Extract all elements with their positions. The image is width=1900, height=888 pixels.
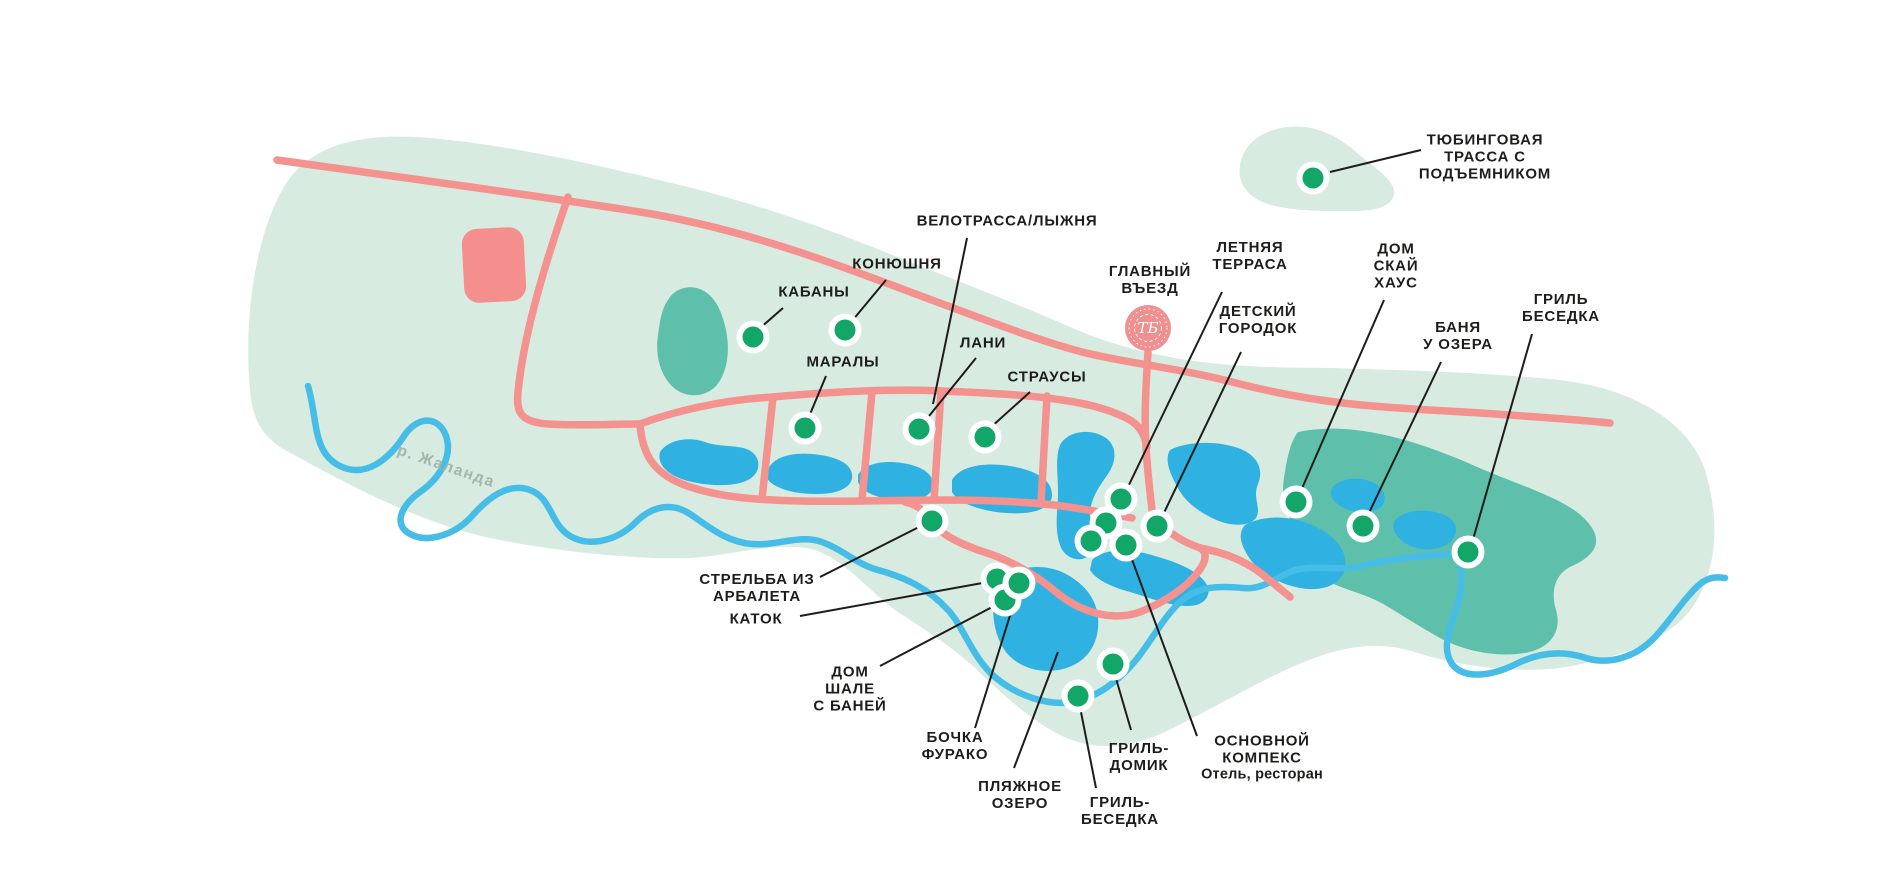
chalet-house-label: ДОМШАЛЕС БАНЕЙ bbox=[813, 664, 886, 715]
grill-cabin-marker[interactable] bbox=[1097, 648, 1130, 681]
sky-house-label: ДОМСКАЙХАУС bbox=[1374, 241, 1419, 292]
grill-gazebo-east-label-line: БЕСЕДКА bbox=[1522, 308, 1600, 325]
summer-terrace-marker-dot bbox=[1111, 489, 1132, 510]
crossbow-shooting-label: СТРЕЛЬБА ИЗАРБАЛЕТА bbox=[699, 571, 814, 605]
beach-lake-label-line: ОЗЕРО bbox=[978, 795, 1062, 812]
main-complex-label: ОСНОВНОЙКОМПЕКСОтель, ресторан bbox=[1201, 733, 1323, 784]
tubing-track-label-line: ПОДЪЕМНИКОМ bbox=[1419, 166, 1551, 183]
kids-playground-label-line: ДЕТСКИЙ bbox=[1219, 303, 1297, 320]
crossbow-shooting-marker[interactable] bbox=[916, 505, 949, 538]
bike-ski-track-label: ВЕЛОТРАССА/ЛЫЖНЯ bbox=[917, 213, 1098, 230]
tubing-track-label: ТЮБИНГОВАЯТРАССА СПОДЪЕМНИКОМ bbox=[1419, 132, 1551, 183]
ostriches-marker-dot bbox=[975, 427, 996, 448]
furako-barrel-label-line: ФУРАКО bbox=[922, 746, 989, 763]
main-entrance-label-line: ВЪЕЗД bbox=[1109, 280, 1191, 297]
chalet-house-label-line: ШАЛЕ bbox=[813, 681, 886, 698]
main-complex-label-line: ОСНОВНОЙ bbox=[1201, 733, 1323, 750]
tubing-track-marker[interactable] bbox=[1297, 162, 1330, 195]
grill-gazebo-south-marker[interactable] bbox=[1062, 680, 1095, 713]
fallow-deer-label-line: ЛАНИ bbox=[960, 335, 1006, 352]
sky-house-label-line: ХАУС bbox=[1374, 275, 1419, 292]
crossbow-shooting-label-line: СТРЕЛЬБА ИЗ bbox=[699, 571, 814, 588]
main-entrance-label-line: ГЛАВНЫЙ bbox=[1109, 263, 1191, 280]
sky-house-label-line: СКАЙ bbox=[1374, 258, 1419, 275]
entrance-logo-monogram: ТБ bbox=[1137, 319, 1158, 337]
grill-gazebo-east-label: ГРИЛЬБЕСЕДКА bbox=[1522, 291, 1600, 325]
sky-house-label-line: ДОМ bbox=[1374, 241, 1419, 258]
sky-house-marker[interactable] bbox=[1280, 486, 1313, 519]
tubing-track-label-line: ТРАССА С bbox=[1419, 149, 1551, 166]
grill-cabin-label-line: ДОМИК bbox=[1109, 757, 1169, 774]
entrance-logo[interactable]: ТБ bbox=[1125, 305, 1171, 351]
ostriches-label: СТРАУСЫ bbox=[1007, 369, 1086, 386]
lake-bathhouse-label-line: У ОЗЕРА bbox=[1423, 336, 1493, 353]
stable-marker[interactable] bbox=[829, 314, 862, 347]
lake-bathhouse-marker-dot bbox=[1353, 516, 1374, 537]
boars-label: КАБАНЫ bbox=[778, 284, 849, 301]
furako-barrel-marker-dot bbox=[1009, 573, 1030, 594]
lake-bathhouse-label: БАНЯУ ОЗЕРА bbox=[1423, 319, 1493, 353]
ostriches-label-line: СТРАУСЫ bbox=[1007, 369, 1086, 386]
grill-cabin-label-line: ГРИЛЬ- bbox=[1109, 740, 1169, 757]
grill-gazebo-east-marker-dot bbox=[1458, 542, 1479, 563]
building-block bbox=[461, 226, 527, 303]
poi-unlabeled-2-marker-dot bbox=[1081, 531, 1102, 552]
ostriches-marker[interactable] bbox=[969, 421, 1002, 454]
marals-marker-dot bbox=[795, 418, 816, 439]
lake-bathhouse-label-line: БАНЯ bbox=[1423, 319, 1493, 336]
crossbow-shooting-label-line: АРБАЛЕТА bbox=[699, 588, 814, 605]
chalet-house-label-line: ДОМ bbox=[813, 664, 886, 681]
grill-gazebo-east-label-line: ГРИЛЬ bbox=[1522, 291, 1600, 308]
main-complex-label-line: КОМПЕКС bbox=[1201, 750, 1323, 767]
grill-cabin-marker-dot bbox=[1103, 654, 1124, 675]
boars-marker-dot bbox=[743, 327, 764, 348]
grill-gazebo-south-label: ГРИЛЬ-БЕСЕДКА bbox=[1081, 794, 1159, 828]
grill-gazebo-south-label-line: ГРИЛЬ- bbox=[1081, 794, 1159, 811]
fallow-deer-label: ЛАНИ bbox=[960, 335, 1006, 352]
skating-rink-label: КАТОК bbox=[730, 611, 783, 628]
grill-gazebo-east-marker[interactable] bbox=[1452, 536, 1485, 569]
furako-barrel-marker[interactable] bbox=[1003, 567, 1036, 600]
resort-map: ТБ р. Жаланда ТЮБИНГОВАЯТРАССА СПОДЪЕМНИ… bbox=[0, 0, 1900, 888]
furako-barrel-label: БОЧКАФУРАКО bbox=[922, 729, 989, 763]
lake-bathhouse-marker[interactable] bbox=[1347, 510, 1380, 543]
beach-lake-label-line: ПЛЯЖНОЕ bbox=[978, 778, 1062, 795]
stable-marker-dot bbox=[835, 320, 856, 341]
bike-ski-track-label-line: ВЕЛОТРАССА/ЛЫЖНЯ bbox=[917, 213, 1098, 230]
stable-label-line: КОНЮШНЯ bbox=[852, 256, 941, 273]
stable-label: КОНЮШНЯ bbox=[852, 256, 941, 273]
fallow-deer-marker-dot bbox=[909, 419, 930, 440]
furako-barrel-label-line: БОЧКА bbox=[922, 729, 989, 746]
grill-cabin-label: ГРИЛЬ-ДОМИК bbox=[1109, 740, 1169, 774]
sky-house-marker-dot bbox=[1286, 492, 1307, 513]
marals-label: МАРАЛЫ bbox=[806, 354, 879, 371]
kids-playground-marker[interactable] bbox=[1141, 510, 1174, 543]
tubing-track-label-line: ТЮБИНГОВАЯ bbox=[1419, 132, 1551, 149]
boars-label-line: КАБАНЫ bbox=[778, 284, 849, 301]
grill-gazebo-south-label-line: БЕСЕДКА bbox=[1081, 811, 1159, 828]
marals-marker[interactable] bbox=[789, 412, 822, 445]
kids-playground-label: ДЕТСКИЙГОРОДОК bbox=[1219, 303, 1297, 337]
summer-terrace-label: ЛЕТНЯЯТЕРРАСА bbox=[1212, 239, 1287, 273]
marals-label-line: МАРАЛЫ bbox=[806, 354, 879, 371]
skating-rink-label-line: КАТОК bbox=[730, 611, 783, 628]
poi-unlabeled-2-marker[interactable] bbox=[1075, 525, 1108, 558]
crossbow-shooting-marker-dot bbox=[922, 511, 943, 532]
summer-terrace-label-line: ЛЕТНЯЯ bbox=[1212, 239, 1287, 256]
beach-lake-label: ПЛЯЖНОЕОЗЕРО bbox=[978, 778, 1062, 812]
kids-playground-marker-dot bbox=[1147, 516, 1168, 537]
main-entrance-label: ГЛАВНЫЙВЪЕЗД bbox=[1109, 263, 1191, 297]
main-complex-marker-dot bbox=[1116, 535, 1137, 556]
summer-terrace-label-line: ТЕРРАСА bbox=[1212, 256, 1287, 273]
kids-playground-label-line: ГОРОДОК bbox=[1219, 320, 1297, 337]
grill-gazebo-south-marker-dot bbox=[1068, 686, 1089, 707]
tubing-track-marker-dot bbox=[1303, 168, 1324, 189]
main-complex-sublabel: Отель, ресторан bbox=[1201, 767, 1323, 784]
chalet-house-label-line: С БАНЕЙ bbox=[813, 698, 886, 715]
fallow-deer-marker[interactable] bbox=[903, 413, 936, 446]
boars-marker[interactable] bbox=[737, 321, 770, 354]
